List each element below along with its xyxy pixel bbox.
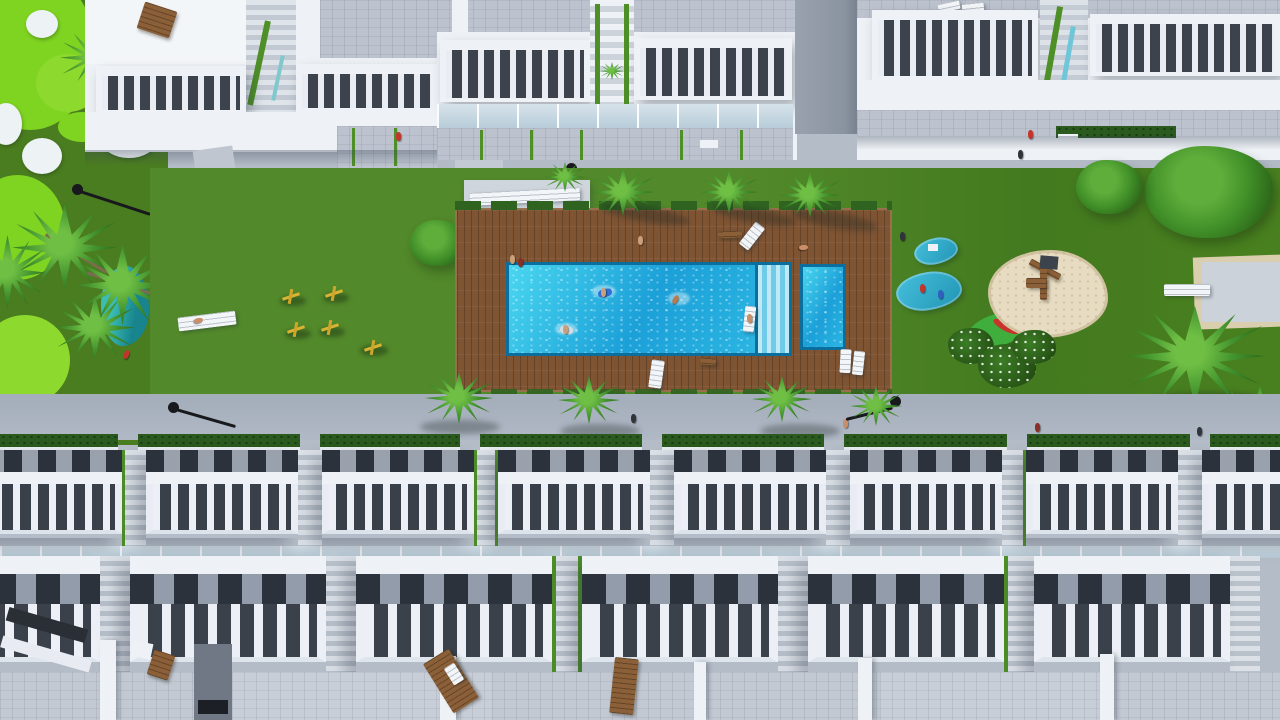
- staircase: [122, 450, 146, 546]
- person: [1197, 427, 1202, 436]
- terrace-beam: [146, 472, 298, 484]
- swimmer: [563, 325, 568, 334]
- balustrade: [440, 40, 590, 102]
- sun-lounger: [839, 349, 851, 374]
- staircase: [778, 556, 808, 672]
- roof-solarium: [320, 0, 437, 58]
- terrace-beam: [498, 472, 650, 484]
- facade-band: [857, 80, 1280, 110]
- person: [1035, 423, 1040, 432]
- hedge: [138, 434, 300, 450]
- staircase: [298, 450, 322, 546]
- outdoor-gym: [280, 288, 302, 306]
- aerial-render-scene: Aerial 3D architectural render of a resi…: [0, 0, 1280, 720]
- terrace-beam: [356, 556, 552, 574]
- balustrade: [872, 10, 1038, 80]
- balustrade: [322, 484, 474, 534]
- staircase: [826, 450, 850, 546]
- kids-pool: [800, 264, 846, 350]
- hedge: [844, 434, 1007, 450]
- alley-wall: [795, 0, 857, 134]
- outdoor-gym: [362, 339, 384, 357]
- terrace-planter: [740, 130, 743, 164]
- terrace-planter: [580, 130, 583, 164]
- terrace-planter: [530, 130, 533, 164]
- balustrade: [356, 604, 552, 662]
- terrace-doors: [1034, 574, 1230, 604]
- stair-opening: [198, 700, 228, 714]
- townhouse-block: [850, 450, 1002, 538]
- townhouse-block: [0, 450, 122, 538]
- townhouse-block: [1026, 450, 1178, 538]
- person: [510, 255, 515, 264]
- roof-wall: [100, 640, 116, 720]
- terrace-beam: [1026, 472, 1178, 484]
- terrace-doors: [356, 574, 552, 604]
- terrace-beam: [1034, 556, 1230, 574]
- roof-top: [880, 672, 1100, 720]
- frame-platform: [1026, 278, 1046, 288]
- balustrade: [582, 604, 778, 662]
- person: [631, 414, 636, 423]
- sand-bunker: [22, 138, 62, 174]
- frame-roof: [1039, 255, 1058, 270]
- terrace-doors: [808, 574, 1004, 604]
- person: [638, 236, 643, 245]
- balustrade: [1090, 14, 1280, 76]
- terrace-beam: [1202, 472, 1280, 484]
- roof-divider: [452, 0, 468, 32]
- balustrade: [1202, 484, 1280, 534]
- terrace-doors: [1026, 450, 1178, 472]
- terrace-beam: [582, 556, 778, 574]
- deck-bench: [718, 231, 742, 239]
- staircase: [650, 450, 674, 546]
- balustrade: [296, 64, 437, 112]
- roof-wall: [1100, 654, 1114, 720]
- balustrade: [674, 484, 826, 534]
- terrace-doors: [582, 574, 778, 604]
- townhouse-block: [1202, 450, 1280, 538]
- balustrade: [808, 604, 1004, 662]
- townhouse-block: [582, 556, 778, 672]
- outdoor-gym: [285, 321, 307, 339]
- terrace-beam: [130, 556, 326, 574]
- deck-bench: [700, 357, 716, 365]
- play-toy: [928, 244, 938, 251]
- balustrade: [96, 66, 246, 114]
- person: [396, 132, 401, 141]
- terrace-doors: [0, 450, 122, 472]
- roof-wall: [694, 662, 706, 720]
- outdoor-gym: [319, 319, 341, 337]
- townhouse-block: [356, 556, 552, 672]
- hedge: [662, 434, 824, 450]
- stairwell: [246, 0, 296, 124]
- swimmer: [747, 314, 752, 323]
- townhouse-block: [674, 450, 826, 538]
- balustrade: [1026, 484, 1178, 534]
- stair-planter: [624, 4, 629, 108]
- balustrade: [634, 38, 792, 100]
- outdoor-gym: [323, 285, 345, 303]
- townhouse-block: [1034, 556, 1230, 672]
- person: [900, 232, 905, 241]
- terrace-beam: [0, 472, 122, 484]
- terrace-beam: [0, 556, 100, 574]
- terrace-doors: [674, 450, 826, 472]
- balustrade: [0, 484, 122, 534]
- petanque-surface: [1202, 262, 1280, 322]
- terrace-doors: [130, 574, 326, 604]
- balustrade: [1034, 604, 1230, 662]
- balustrade: [146, 484, 298, 534]
- garden-bench: [1164, 284, 1210, 296]
- terrace-doors: [1202, 450, 1280, 472]
- townhouse-block: [146, 450, 298, 538]
- staircase: [1230, 556, 1260, 672]
- building-shadow: [85, 150, 437, 166]
- terrace-planter: [480, 130, 483, 164]
- terrace-doors: [0, 574, 100, 604]
- hedge: [320, 434, 460, 450]
- water-splash: [668, 292, 690, 305]
- hedge: [1027, 434, 1190, 450]
- terrace-doors: [322, 450, 474, 472]
- pool-steps: [758, 262, 792, 356]
- terrace-beam: [850, 472, 1002, 484]
- person: [1018, 150, 1023, 159]
- roof-wall: [858, 658, 872, 720]
- townhouse-block: [808, 556, 1004, 672]
- child: [938, 290, 943, 299]
- palm-shadow: [420, 420, 500, 434]
- staircase: [1002, 450, 1026, 546]
- terrace-beam: [322, 472, 474, 484]
- staircase: [1178, 450, 1202, 546]
- staircase: [474, 450, 498, 546]
- balustrade: [850, 484, 1002, 534]
- stair-planter: [595, 4, 600, 108]
- staircase: [326, 556, 356, 672]
- flowering-bush: [1012, 330, 1056, 364]
- terrace-planter: [680, 130, 683, 164]
- person: [1028, 130, 1033, 139]
- terrace-beam: [674, 472, 826, 484]
- hedge: [0, 434, 118, 450]
- terrace-doors: [146, 450, 298, 472]
- child: [920, 284, 925, 293]
- bright-grass-patch: [0, 315, 70, 405]
- person: [518, 258, 523, 267]
- terrace-doors: [498, 450, 650, 472]
- balustrade: [498, 484, 650, 534]
- terrace-beam: [808, 556, 1004, 574]
- townhouse-block: [322, 450, 474, 538]
- terrace-doors: [850, 450, 1002, 472]
- person: [123, 349, 131, 359]
- swimmer: [601, 288, 606, 297]
- townhouse-block: [498, 450, 650, 538]
- sand-bunker: [26, 10, 58, 38]
- swimming-pool: [506, 262, 758, 356]
- hedge: [1210, 434, 1280, 450]
- hedge: [480, 434, 642, 450]
- planter-box: [700, 140, 718, 148]
- glass-walkway: [437, 104, 793, 128]
